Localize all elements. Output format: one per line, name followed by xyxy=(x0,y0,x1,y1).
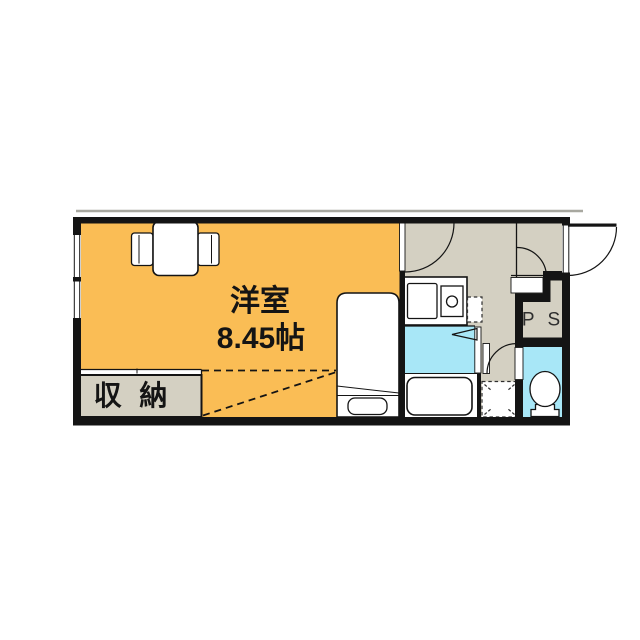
entrance-door xyxy=(562,224,617,276)
refrigerator-space xyxy=(468,297,483,322)
bathroom-door-opening xyxy=(475,327,481,373)
pipe-space-label: P S xyxy=(522,310,564,331)
floor-plan-canvas: 収 納 xyxy=(0,0,640,640)
kitchen-doorway xyxy=(400,223,406,271)
window-mullion xyxy=(73,277,81,282)
bed xyxy=(337,293,399,417)
dining-table xyxy=(153,222,198,276)
entrance-door-arc xyxy=(568,227,617,276)
bath xyxy=(402,374,481,418)
bathroom-floor xyxy=(402,326,475,374)
entrance-door-leaf xyxy=(568,224,617,227)
chair-left xyxy=(132,233,154,266)
washing-machine-box xyxy=(482,382,517,418)
window xyxy=(73,235,81,318)
wall-bottom xyxy=(73,417,570,426)
main-room-name: 洋室 xyxy=(230,284,290,318)
wall-bath-divider xyxy=(477,374,481,418)
burner xyxy=(447,296,458,307)
main-room-size: 8.45帖 xyxy=(217,322,305,355)
kitchen-counter xyxy=(404,277,468,325)
washing-machine-space xyxy=(482,382,517,418)
pillow xyxy=(348,398,387,415)
floor-plan-page: 収 納 xyxy=(0,0,640,640)
closet: 収 納 xyxy=(80,369,202,418)
toilet-door-opening xyxy=(515,348,523,380)
wall-main-kitchen xyxy=(400,271,406,425)
chair-right xyxy=(198,233,220,266)
wall-toilet-stub xyxy=(515,380,523,418)
toilet-bowl xyxy=(530,372,560,407)
closet-label: 収 納 xyxy=(94,379,173,411)
ps-wall-bottom xyxy=(515,338,562,348)
wall-top xyxy=(73,217,570,224)
bathroom xyxy=(402,326,481,374)
bathtub xyxy=(407,378,472,416)
toilet-door-leaf xyxy=(483,344,490,374)
sink xyxy=(408,284,438,319)
shoe-cabinet xyxy=(511,278,543,294)
